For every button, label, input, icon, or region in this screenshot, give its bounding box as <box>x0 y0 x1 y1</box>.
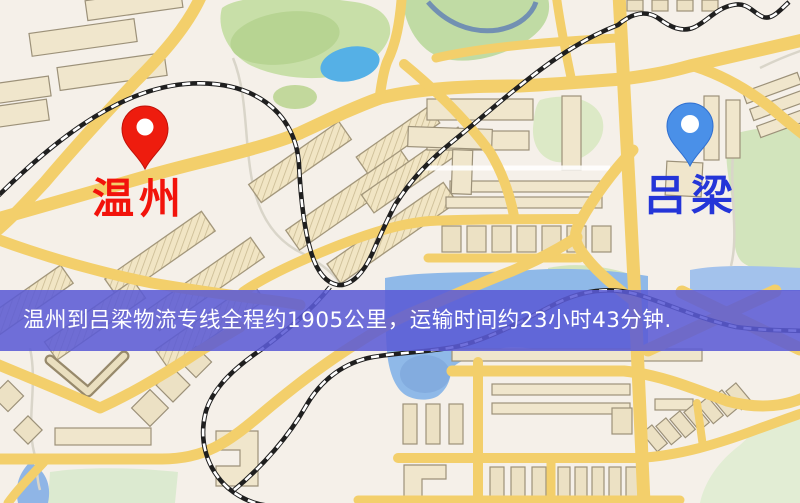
origin-label: 温州 <box>92 178 186 220</box>
route-info-banner: 温州到吕梁物流专线全程约1905公里，运输时间约23小时43分钟. <box>0 290 800 351</box>
destination-pin-hole <box>681 115 699 133</box>
map-canvas <box>0 0 800 503</box>
origin-pin-hole <box>137 119 154 136</box>
logistics-route-map: 温州 吕梁 温州到吕梁物流专线全程约1905公里，运输时间约23小时43分钟. <box>0 0 800 503</box>
route-info-text: 温州到吕梁物流专线全程约1905公里，运输时间约23小时43分钟. <box>0 290 800 351</box>
water-strip <box>690 266 800 291</box>
destination-label: 吕梁 <box>644 175 738 217</box>
